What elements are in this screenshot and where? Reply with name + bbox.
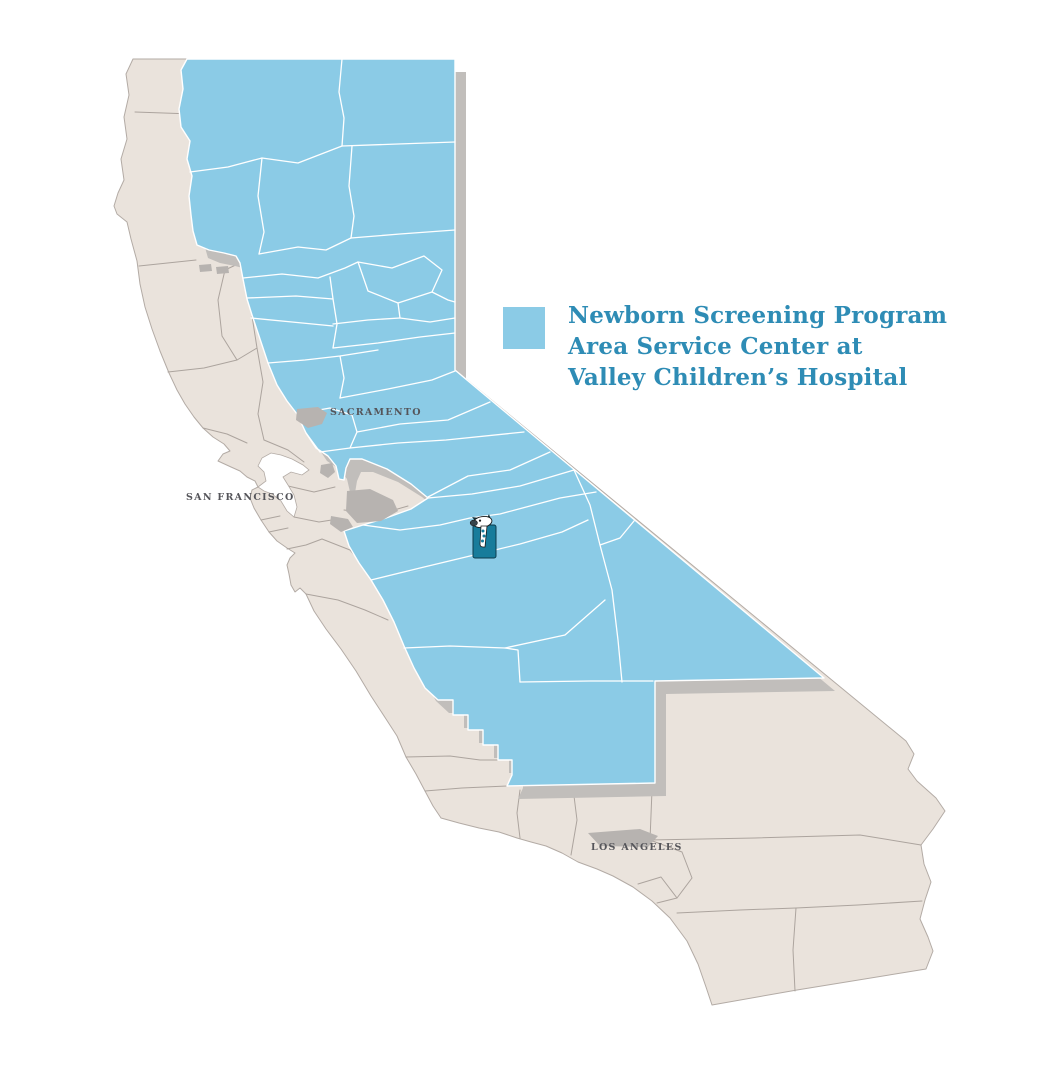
legend: Newborn Screening Program Area Service C… <box>503 300 947 393</box>
legend-line-3: Valley Children’s Hospital <box>568 362 947 393</box>
sacramento-label: SACRAMENTO <box>330 407 422 418</box>
legend-swatch <box>503 307 545 349</box>
san-francisco-label: SAN FRANCISCO <box>186 492 295 503</box>
california-map: SACRAMENTO SAN FRANCISCO LOS ANGELES <box>0 0 1038 1080</box>
legend-line-2: Area Service Center at <box>568 331 947 362</box>
page: SACRAMENTO SAN FRANCISCO LOS ANGELES New… <box>0 0 1038 1080</box>
legend-text: Newborn Screening Program Area Service C… <box>568 300 947 393</box>
los-angeles-label: LOS ANGELES <box>591 842 683 853</box>
hospital-marker <box>470 514 496 558</box>
giraffe-logo-icon <box>470 514 496 558</box>
legend-line-1: Newborn Screening Program <box>568 300 947 331</box>
